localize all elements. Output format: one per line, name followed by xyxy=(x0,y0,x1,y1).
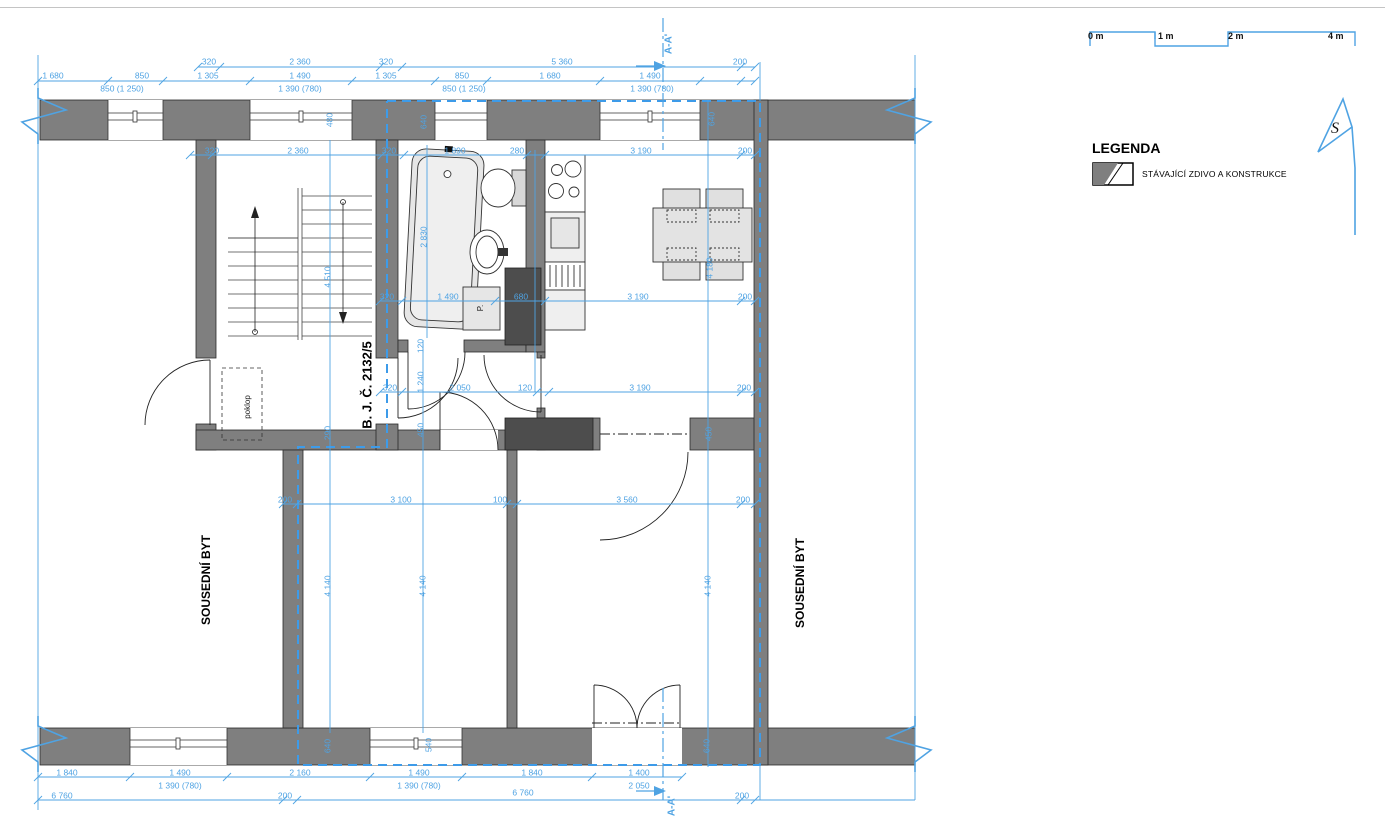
dimension-label: 200 xyxy=(735,790,749,800)
floor-plan-svg: 3202 3603205 3602001 6808501 3051 4901 3… xyxy=(0,0,940,826)
plan-label: SOUSEDNÍ BYT xyxy=(792,537,807,628)
dimension-label: 2 360 xyxy=(289,56,311,66)
dimension-label: 640 xyxy=(701,739,711,753)
dimension-label: 320 xyxy=(202,56,216,66)
dimension-label: 320 xyxy=(205,145,219,155)
door-arc xyxy=(145,360,210,425)
north-arrow: S xyxy=(1305,85,1375,245)
dimension-label: 1 305 xyxy=(197,70,219,80)
dimension-label: 450 xyxy=(415,423,425,437)
dimension-label: 1 305 xyxy=(375,70,397,80)
dimension-label: 850 (1 250) xyxy=(442,83,486,93)
window xyxy=(250,100,352,140)
closet xyxy=(505,418,593,450)
plan-label: P. xyxy=(476,305,485,312)
dimension-label: 3 100 xyxy=(390,494,412,504)
dimension-label: 4 140 xyxy=(417,575,427,597)
window xyxy=(435,100,487,140)
dimension-label: 1 490 xyxy=(639,70,661,80)
dimension-label: 1 680 xyxy=(42,70,64,80)
dimension-label: 200 xyxy=(737,382,751,392)
hatch-outline xyxy=(222,368,262,440)
dimension-label: 3 190 xyxy=(630,145,652,155)
dimension-label: 4 180 xyxy=(704,257,714,279)
dimension-label: 2 830 xyxy=(418,226,428,248)
toilet xyxy=(481,169,526,207)
plan-label: SOUSEDNÍ BYT xyxy=(198,534,213,625)
shaft xyxy=(505,268,541,345)
dimension-label: 320 xyxy=(383,382,397,392)
dimension-label: 850 xyxy=(455,70,469,80)
scale-bar xyxy=(1086,26,1366,56)
dining-set xyxy=(653,189,752,280)
dimension-label: 640 xyxy=(322,739,332,753)
plan-label: poklop xyxy=(243,395,252,419)
dimension-label: 1 390 (780) xyxy=(630,83,674,93)
dimension-label: 1 400 xyxy=(628,767,650,777)
dimension-label: 280 xyxy=(510,145,524,155)
dimension-label: 1 390 (780) xyxy=(397,780,441,790)
dimension-label: 4 510 xyxy=(322,266,332,288)
dimension-label: 4 140 xyxy=(322,575,332,597)
dimension-label: 1 840 xyxy=(56,767,78,777)
plan-label: A-A' xyxy=(667,796,678,816)
dimension-label: 850 xyxy=(135,70,149,80)
dimension-label: 3 560 xyxy=(616,494,638,504)
dimension-label: 3 190 xyxy=(629,382,651,392)
drawing-sheet: 3202 3603205 3602001 6808501 3051 4901 3… xyxy=(0,0,1385,826)
dimension-label: 1 490 xyxy=(408,767,430,777)
legend-swatch-existing-masonry-icon xyxy=(1092,162,1134,186)
dimension-label: 2 160 xyxy=(289,767,311,777)
dimension-label: 200 xyxy=(278,494,292,504)
dimension-label: 850 (1 250) xyxy=(100,83,144,93)
dimension-label: 6 760 xyxy=(51,790,73,800)
dimension-label: 1 890 xyxy=(444,145,466,155)
window xyxy=(108,100,163,140)
chair xyxy=(706,189,743,209)
kitchen-counter xyxy=(545,212,585,330)
scale-bar-tick-label: 4 m xyxy=(1328,31,1344,41)
door-arc xyxy=(484,355,541,412)
window xyxy=(600,100,700,140)
dimension-label: 1 840 xyxy=(521,767,543,777)
dimension-label: 320 xyxy=(379,56,393,66)
dimension-label: 1 240 xyxy=(415,371,425,393)
kitchen-fixtures xyxy=(545,155,585,330)
dimension-label: 5 360 xyxy=(551,56,573,66)
scale-bar-tick-label: 0 m xyxy=(1088,31,1104,41)
dimension-label: 200 xyxy=(738,291,752,301)
dimension-label: 2 050 xyxy=(628,780,650,790)
dimension-label: 1 490 xyxy=(437,291,459,301)
dimension-label: 100 xyxy=(493,494,507,504)
legend-item: STÁVAJÍCÍ ZDIVO A KONSTRUKCE xyxy=(1092,162,1287,186)
dimension-label: 200 xyxy=(733,56,747,66)
dining-table xyxy=(653,208,752,262)
door-arc xyxy=(600,434,690,540)
dimension-label: 1 390 (780) xyxy=(278,83,322,93)
double-door xyxy=(592,685,682,728)
scale-bar-tick-label: 1 m xyxy=(1158,31,1174,41)
legend-title: LEGENDA xyxy=(1092,140,1160,156)
dimension-label: 450 xyxy=(703,427,713,441)
scale-bar-tick-label: 2 m xyxy=(1228,31,1244,41)
dimension-label: 320 xyxy=(380,291,394,301)
stove xyxy=(545,155,585,212)
dimension-label: 680 xyxy=(514,291,528,301)
dimension-label: 640 xyxy=(418,115,428,129)
dimension-label: 1 390 (780) xyxy=(158,780,202,790)
dimension-label: 1 680 xyxy=(539,70,561,80)
dimension-label: 290 xyxy=(322,426,332,440)
window xyxy=(370,728,462,765)
dimension-label: 540 xyxy=(423,738,433,752)
plan-label: A-A' xyxy=(664,34,675,54)
doors xyxy=(145,352,690,728)
dimension-label: 200 xyxy=(738,145,752,155)
chair xyxy=(663,189,700,209)
legend-item-label: STÁVAJÍCÍ ZDIVO A KONSTRUKCE xyxy=(1142,169,1287,179)
sink xyxy=(470,230,508,274)
dimension-label: 4 140 xyxy=(702,575,712,597)
dimension-label: 200 xyxy=(736,494,750,504)
balcony-door-opening xyxy=(592,728,682,765)
plan-label: B. J. Č. 2132/5 xyxy=(359,341,374,428)
dimension-label: 1 490 xyxy=(289,70,311,80)
dimension-label: 200 xyxy=(278,790,292,800)
dimension-label: 2 050 xyxy=(449,382,471,392)
dimension-label: 3 190 xyxy=(627,291,649,301)
door-gap xyxy=(440,430,498,450)
dimension-label: 6 760 xyxy=(512,787,534,797)
dimension-label: 1 490 xyxy=(169,767,191,777)
dimension-label: 640 xyxy=(706,112,716,126)
north-label: S xyxy=(1331,120,1339,137)
dimension-label: 120 xyxy=(518,382,532,392)
dimension-label: 320 xyxy=(382,145,396,155)
window xyxy=(130,728,227,765)
chair xyxy=(663,261,700,280)
dimension-label: 2 360 xyxy=(287,145,309,155)
dimension-label: 480 xyxy=(324,113,334,127)
dimension-label: 120 xyxy=(415,339,425,353)
